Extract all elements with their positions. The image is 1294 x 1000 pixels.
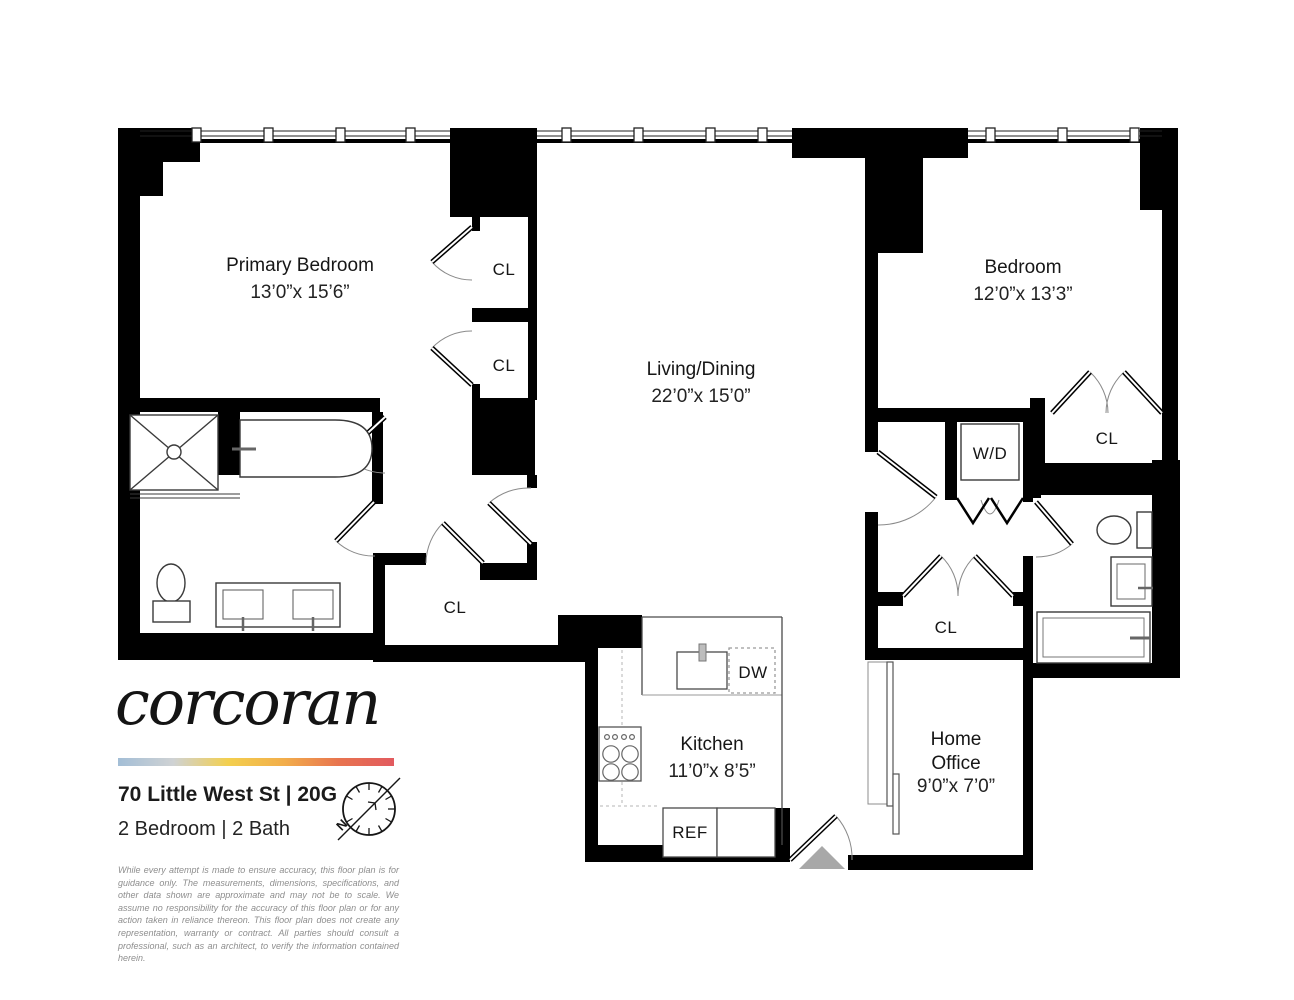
disclaimer-text: While every attempt is made to ensure ac… — [118, 864, 399, 965]
counter-cell — [717, 808, 775, 857]
sliding-door-panel — [887, 662, 893, 806]
dishwasher-label: DW — [738, 663, 767, 682]
toilet-tank — [153, 601, 190, 622]
floorplan-page: Primary Bedroom 13’0”x 15’6” Living/Dini… — [0, 0, 1294, 1000]
refrigerator-label: REF — [672, 823, 708, 842]
home-office-label-line1: Home — [931, 729, 982, 750]
closet-label: CL — [493, 260, 516, 279]
toilet-tank — [1137, 512, 1152, 548]
bifold-doors — [957, 498, 1023, 523]
closet-label: CL — [444, 598, 467, 617]
sliding-doors — [868, 662, 899, 834]
sliding-door-panel — [893, 774, 899, 834]
brand-gradient-bar — [118, 758, 394, 766]
closet-label: CL — [1096, 429, 1119, 448]
home-office-dims: 9’0”x 7’0” — [917, 776, 995, 797]
burner-icon — [603, 764, 619, 780]
kitchen-dims: 11’0”x 8’5” — [668, 761, 755, 782]
window-band — [140, 128, 1162, 142]
closet-label: CL — [935, 618, 958, 637]
faucet-icon — [699, 644, 706, 661]
toilet — [157, 564, 185, 602]
living-dining-label: Living/Dining — [647, 359, 756, 380]
closet-label: CL — [493, 356, 516, 375]
burner-icon — [603, 746, 619, 762]
toilet — [1097, 516, 1131, 544]
bedroom-dims: 12’0”x 13’3” — [973, 284, 1072, 305]
kitchen-label: Kitchen — [680, 734, 743, 755]
sink — [293, 590, 333, 619]
burner-icon — [622, 764, 638, 780]
bedroom-label: Bedroom — [984, 257, 1061, 278]
entry-arrow-icon — [799, 846, 845, 869]
primary-bedroom-label: Primary Bedroom — [226, 255, 374, 276]
primary-bedroom-dims: 13’0”x 15’6” — [250, 282, 349, 303]
listing-unit-info: 2 Bedroom | 2 Bath — [118, 818, 290, 841]
room-labels: Primary Bedroom 13’0”x 15’6” Living/Dini… — [226, 255, 1118, 842]
bathtub — [240, 420, 372, 477]
burner-icon — [622, 746, 638, 762]
sink — [1117, 564, 1145, 599]
compass-icon: N — [333, 774, 405, 846]
washer-dryer-label: W/D — [973, 444, 1008, 463]
listing-address: 70 Little West St | 20G — [118, 783, 337, 807]
corcoran-logo: corcoran — [115, 672, 415, 734]
sink — [223, 590, 263, 619]
living-dining-dims: 22’0”x 15’0” — [651, 386, 750, 407]
shower-drain — [167, 445, 181, 459]
floor-plan: Primary Bedroom 13’0”x 15’6” Living/Dini… — [0, 0, 1294, 1000]
primary-bathroom — [130, 415, 372, 631]
second-bathroom — [1037, 512, 1153, 663]
home-office-label-line2: Office — [931, 753, 980, 774]
